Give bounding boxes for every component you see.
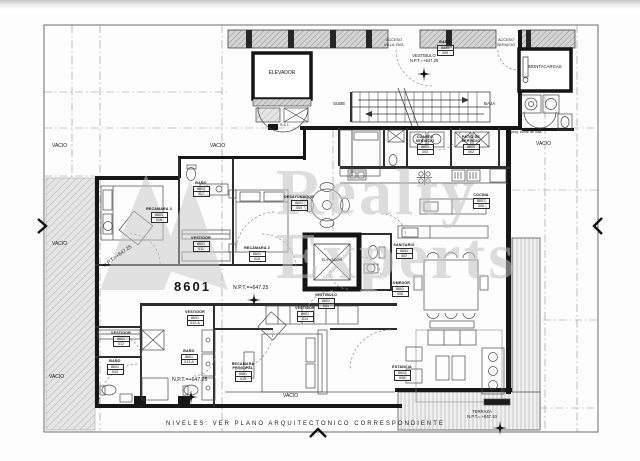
room-id: 018 (250, 256, 265, 261)
room-name: RECAMARA 2 (242, 246, 272, 250)
room-id: 014 (298, 316, 313, 321)
room-label-cuarto-servicio: CUARTO SERVICIO8601003 (410, 135, 440, 155)
room-name: BAÑO (100, 359, 130, 363)
slab-projection-note: proy. borde de losa (511, 130, 542, 134)
room-id: 017 (194, 191, 209, 196)
room-id: 006 (393, 291, 408, 296)
void-label: VACIO (52, 143, 67, 149)
room-name: BAÑO (174, 349, 204, 353)
freight-elevator (519, 49, 572, 130)
room-id: 007 (397, 253, 412, 258)
room-tag: 8601001 (318, 298, 335, 309)
room-name: PATIO DE SERVICIO (456, 135, 486, 143)
room-id: 009 (438, 50, 453, 55)
service-bed-icon (340, 130, 380, 176)
room-name: CUARTO SERVICIO (410, 135, 440, 143)
room-name: VESTIDOR (186, 236, 216, 240)
room-label-recamara-2: RECAMARA 28601018 (242, 246, 272, 262)
room-tag: 8601005 (473, 198, 490, 209)
room-id: 003 (418, 149, 433, 154)
room-label-bano-013a: BAÑO8601013-A (174, 349, 204, 365)
access-line: SERVICIO (497, 43, 515, 47)
room-tag: 8601011 (193, 241, 210, 252)
room-tag: 8601013-A (181, 354, 198, 365)
room-tag: 8601012 (113, 336, 130, 347)
room-tag: 8601006 (392, 286, 409, 297)
room-tag: 8601017 (193, 186, 210, 197)
room-label-bano-top: BAÑO8601009 (430, 40, 460, 56)
room-id: 016 (152, 217, 167, 222)
room-tag: 8601004 (291, 200, 308, 211)
watermark-logo (94, 158, 234, 296)
room-tag: 8601013 (107, 364, 124, 375)
bed-icon (229, 190, 288, 252)
room-name: VESTIDOR (290, 306, 320, 310)
terraza-level-label: TERRAZA N.P.T.= +647.10 (456, 409, 508, 419)
room-name: COCINA (466, 193, 496, 197)
kitchen-counter-icon (340, 169, 508, 185)
elevator-label: ELEVADOR (255, 70, 309, 76)
room-label-vestidor-011: VESTIDOR8601011 (186, 236, 216, 252)
access-line: ACCESO (498, 38, 514, 42)
room-id: 011 (194, 246, 209, 251)
npt-main-label: N.P.T.=+647.25 (233, 285, 268, 291)
room-name: RECAMARA 3 (144, 207, 174, 211)
elevator-top (253, 53, 311, 132)
room-id: 012-A (188, 320, 203, 325)
room-label-vestidor-014: VESTIDOR8601014 (290, 306, 320, 322)
room-label-bano-017: BAÑO8601017 (186, 181, 216, 197)
room-name: VESTIDOR (180, 310, 210, 314)
void-label: VACIO (536, 141, 551, 147)
stairs-up-label: SUBE (333, 101, 345, 106)
access-servicio-label: ACCESO SERVICIO (486, 38, 526, 47)
stairs (352, 88, 490, 126)
room-tag: 8601003 (417, 144, 434, 155)
room-id: 013-A (182, 359, 197, 364)
void-left-band (46, 178, 95, 430)
room-id: 002 (464, 149, 479, 154)
npt-bottom-label: N.P.T.=+647.25 (172, 377, 207, 383)
room-name: BAÑO (430, 40, 460, 44)
room-label-desayunador: DESAYUNADOR8601004 (284, 195, 314, 211)
room-name: DESAYUNADOR (284, 195, 314, 199)
room-tag: 8601015 (235, 371, 252, 382)
dining-table-icon (414, 253, 488, 319)
kitchen-counter2-icon (398, 226, 488, 238)
room-label-recamara-3: RECAMARA 38601016 (144, 207, 174, 223)
room-label-recamara-principal: RECAMARA PRINCIPAL8601015 (228, 362, 258, 382)
room-tag: 8601009 (437, 45, 454, 56)
access-line: ACCESO (386, 38, 402, 42)
room-id: 015 (236, 376, 251, 381)
access-villa-label: ACCESO VILLA 7601 (372, 38, 416, 47)
room-tag: 8601016 (151, 212, 168, 223)
room-label-vestidor-012: VESTIDOR8601012 (106, 331, 136, 347)
room-name: VESTIDOR (106, 331, 136, 335)
room-id: 012 (114, 341, 129, 346)
unit-number: 8601 (174, 279, 211, 295)
toilet-icon (100, 385, 116, 395)
stairs-down-label: BAJA (484, 101, 495, 106)
access-line: VILLA 7601 (384, 43, 404, 47)
room-label-cocina: COCINA8601005 (466, 193, 496, 209)
master-bath-icons (142, 330, 215, 400)
levels-note: NIVELES: VER PLANO ARQUITECTONICO CORRES… (166, 421, 445, 428)
room-id: 008 (395, 375, 410, 380)
void-label: VACIO (210, 143, 225, 149)
room-id: 004 (292, 205, 307, 210)
room-label-estancia: ESTANCIA8601008 (387, 365, 417, 381)
void-label: VACIO (49, 374, 64, 380)
room-label-sanitario: SANITARIO8601007 (389, 243, 419, 259)
terraza-npt: N.P.T.= +647.10 (467, 414, 497, 419)
sci-label: S.C.I. (280, 123, 290, 128)
private-elevator-label: ELEVADOR (316, 258, 348, 263)
room-tag: 8601018 (249, 251, 266, 262)
floor-plan: Realty Experts VACIO VACIO VACIO VACIO V… (0, 0, 640, 461)
room-tag: 8601008 (394, 370, 411, 381)
room-name: SANITARIO (389, 243, 419, 247)
room-label-vestidor-012a: VESTIDOR8601012-A (180, 310, 210, 326)
room-name: RECAMARA PRINCIPAL (228, 362, 258, 370)
room-name: BAÑO (186, 181, 216, 185)
room-name: VESTIBULO (311, 293, 341, 297)
room-name: ESTANCIA (387, 365, 417, 369)
room-tag: 8601002 (463, 144, 480, 155)
room-id: 001 (319, 303, 334, 308)
void-label: VACIO (283, 393, 298, 399)
void-label: VACIO (52, 241, 67, 247)
scan-edge-shadow (0, 0, 640, 9)
room-id: 005 (474, 203, 489, 208)
room-label-patio-servicio: PATIO DE SERVICIO8601002 (456, 135, 486, 155)
room-id: 013 (108, 369, 123, 374)
room-label-bano-013: BAÑO8601013 (100, 359, 130, 375)
room-tag: 8601012-A (187, 315, 204, 326)
freight-elevator-label: MONTACARGAS (520, 64, 570, 69)
service-bath-icon (388, 130, 404, 166)
room-tag: 8601014 (297, 311, 314, 322)
vestibulo-npt: N.P.T.=+647.25 (410, 58, 439, 63)
room-name: COMEDOR (385, 281, 415, 285)
room-tag: 8601007 (396, 248, 413, 259)
toilet-icon (364, 246, 385, 274)
room-label-comedor: COMEDOR8601006 (385, 281, 415, 297)
